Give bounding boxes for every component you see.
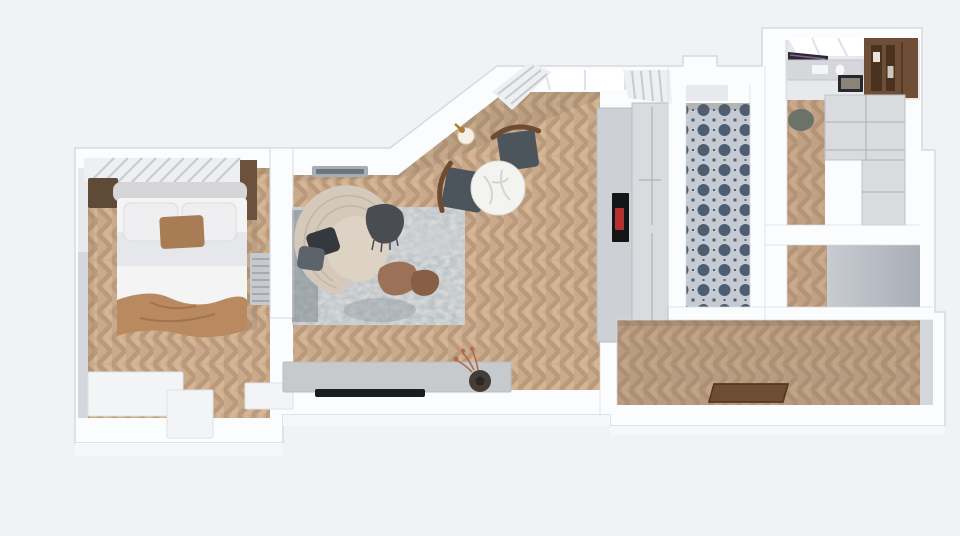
- doormat: [709, 384, 788, 402]
- dining-table: [471, 161, 525, 215]
- sofa-pillow-gray: [296, 245, 325, 271]
- wall-front-bedroom: [75, 443, 283, 456]
- bathroom-door-header: [686, 85, 728, 101]
- ac-vent: [312, 166, 368, 177]
- bathroom-tile-floor: [686, 103, 750, 307]
- ac-vent-slot: [316, 169, 364, 174]
- cabinet-column-right: [632, 103, 668, 346]
- counter-sink: [836, 65, 845, 76]
- room-bedroom: [78, 158, 293, 438]
- picture-image: [841, 78, 860, 89]
- oven-display: [615, 208, 624, 230]
- stool: [788, 109, 814, 131]
- shelf-item-1: [873, 52, 880, 62]
- accent-pillow: [159, 215, 205, 249]
- television: [315, 389, 425, 397]
- floor-plan-render: [0, 0, 960, 536]
- room-bathroom: [686, 85, 750, 307]
- room-hallway: [617, 320, 933, 405]
- room-closet: [787, 245, 920, 307]
- rug-light-patch: [400, 224, 460, 256]
- vase-mouth: [476, 377, 485, 386]
- closet-shadow-zone: [827, 245, 920, 307]
- lamp-bulb: [459, 127, 465, 133]
- double-bed: [113, 182, 257, 337]
- hallway-right-wall-face: [920, 320, 933, 405]
- counter-appliance: [812, 65, 828, 74]
- picture-frame: [838, 75, 863, 92]
- wall-front-hallway: [610, 426, 945, 435]
- bedroom-partition-wall: [270, 148, 293, 318]
- shelf-slot-1: [871, 45, 882, 91]
- kitchenette-cabinet: [597, 103, 668, 346]
- bathroom-shadow-top: [686, 103, 750, 110]
- closet-floor-tint: [787, 245, 827, 307]
- shelf-item-2: [888, 66, 894, 78]
- hallway-shadow-top: [617, 320, 933, 326]
- rug-dark-patch: [344, 298, 416, 322]
- floor-plan-stage: [0, 0, 960, 536]
- walnut-shelf-cabinet: [864, 38, 918, 98]
- bedroom-left-wall-face: [78, 252, 88, 418]
- wall-step-block: [167, 390, 213, 438]
- wall-front-living: [283, 415, 610, 426]
